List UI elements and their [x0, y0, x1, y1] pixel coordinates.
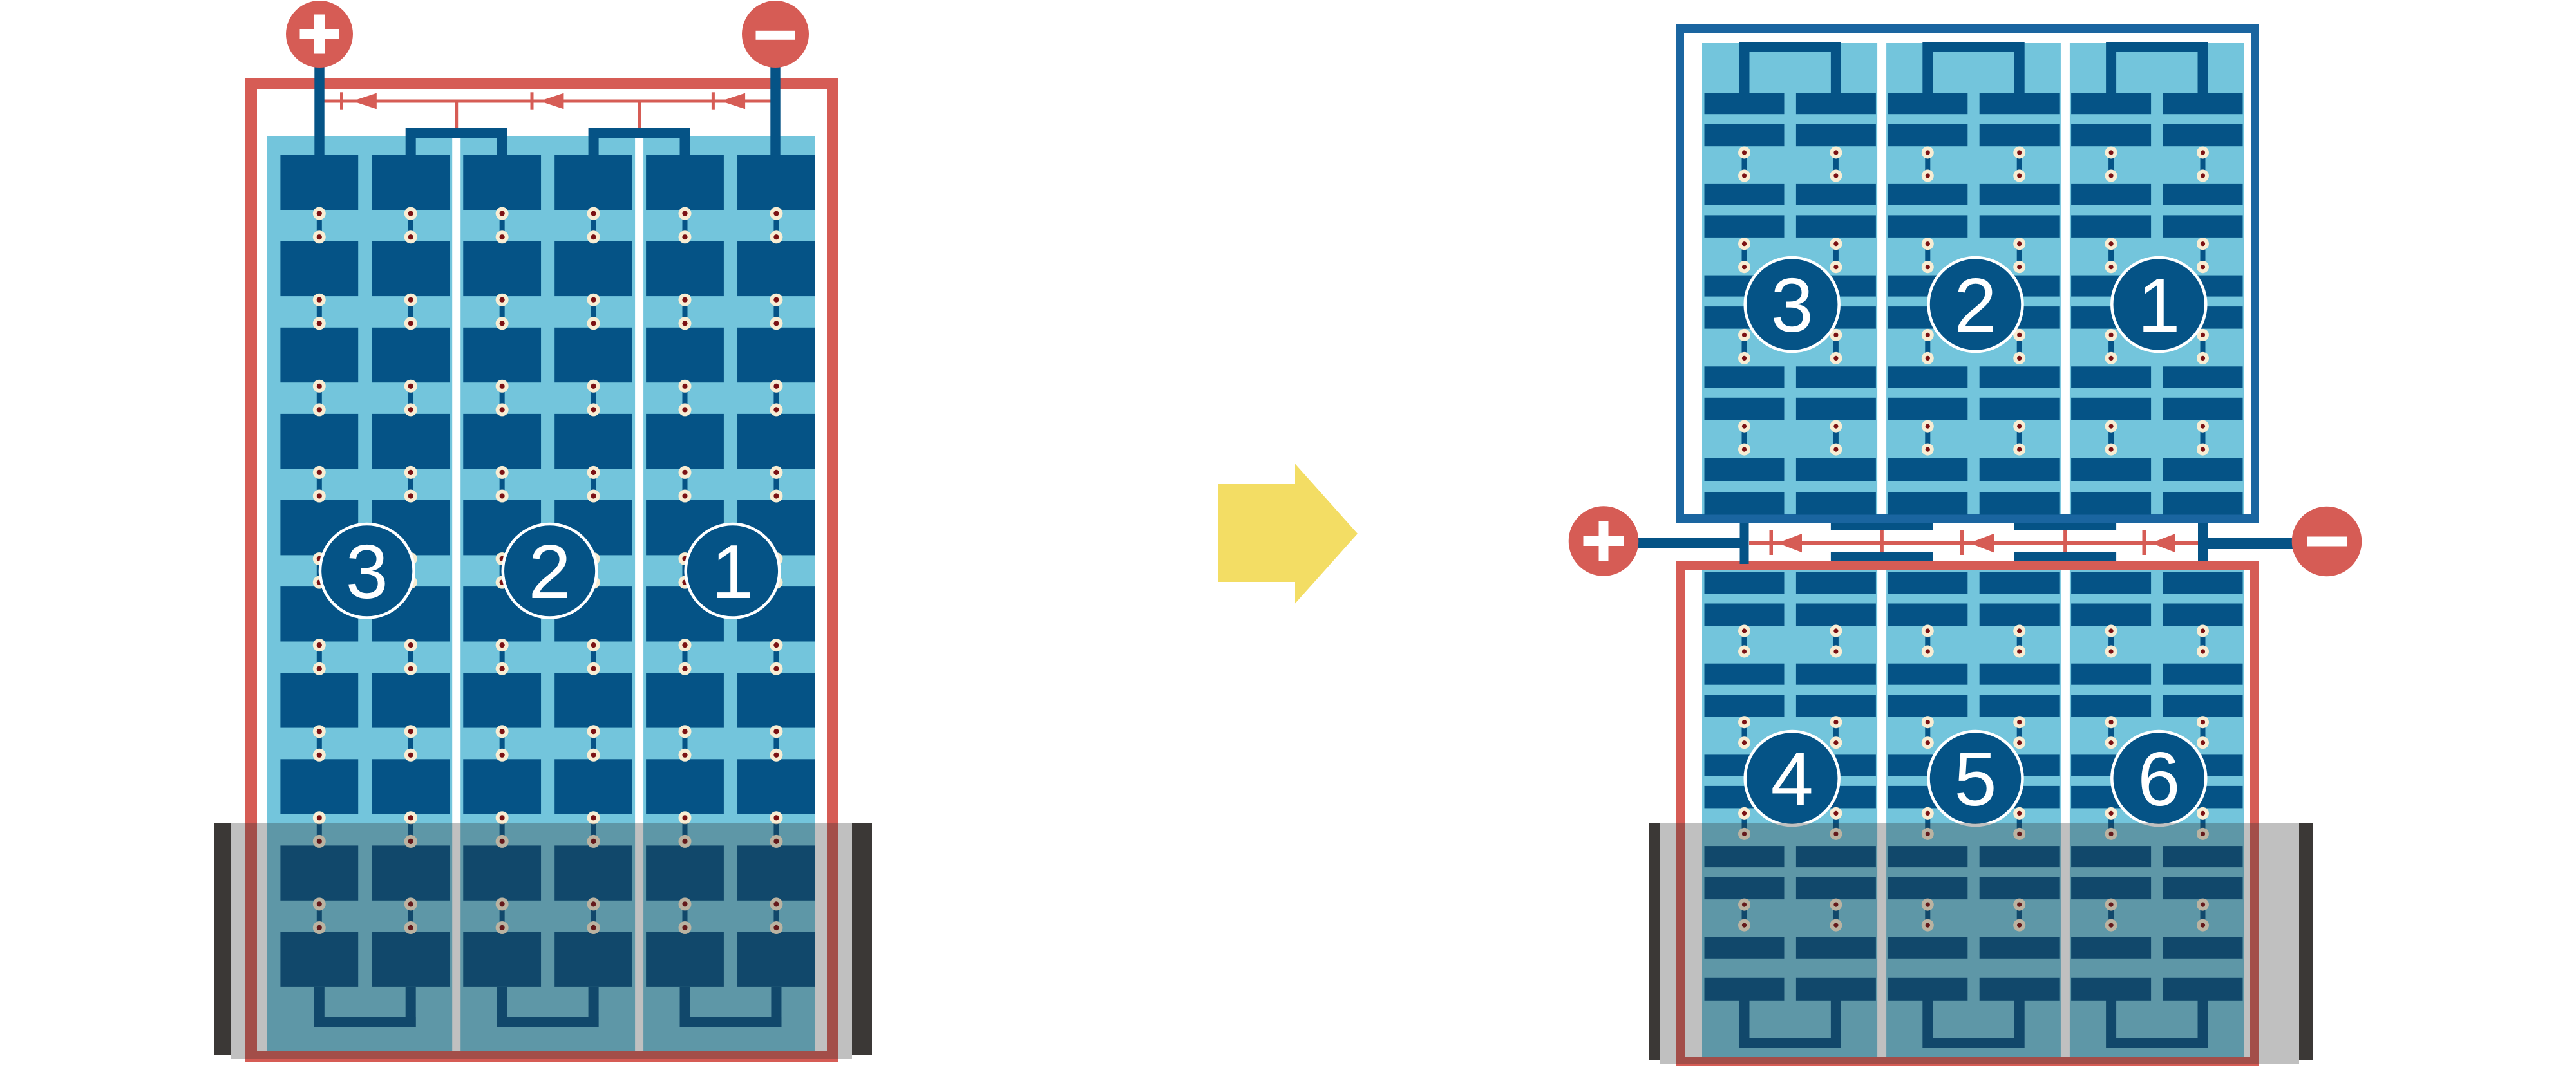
svg-text:3: 3 — [1771, 263, 1814, 348]
svg-text:3: 3 — [346, 529, 388, 615]
svg-text:6: 6 — [2137, 736, 2180, 822]
svg-text:2: 2 — [529, 529, 571, 615]
svg-text:2: 2 — [1954, 263, 1996, 348]
svg-text:1: 1 — [711, 529, 753, 615]
svg-text:5: 5 — [1954, 736, 1996, 822]
svg-text:1: 1 — [2137, 263, 2180, 348]
svg-text:4: 4 — [1771, 736, 1814, 822]
